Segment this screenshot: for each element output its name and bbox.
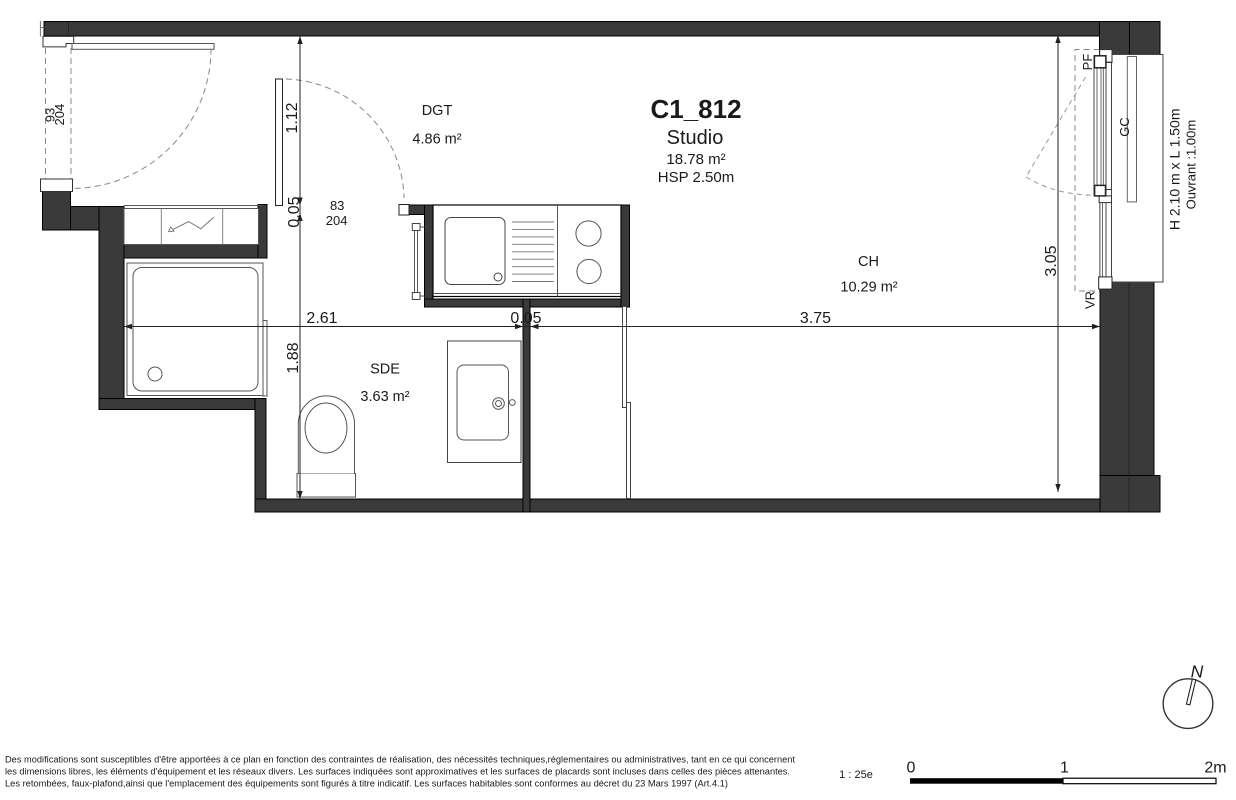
svg-text:3.05: 3.05: [1043, 245, 1060, 276]
svg-text:C1_812: C1_812: [650, 94, 741, 124]
svg-text:1 : 25e: 1 : 25e: [839, 769, 873, 781]
svg-text:1.12: 1.12: [284, 102, 301, 133]
svg-text:CH: CH: [858, 254, 879, 270]
svg-text:1.88: 1.88: [285, 342, 302, 373]
svg-text:SDE: SDE: [370, 362, 400, 378]
svg-text:1: 1: [1060, 760, 1069, 777]
svg-text:204: 204: [52, 104, 67, 126]
svg-text:Des modifications sont suscept: Des modifications sont susceptibles d'êt…: [5, 755, 796, 765]
svg-text:Studio: Studio: [667, 127, 724, 149]
svg-text:H 2.10 m x L 1.50m: H 2.10 m x L 1.50m: [1166, 108, 1182, 230]
svg-text:0: 0: [907, 760, 916, 777]
svg-text:2m: 2m: [1204, 760, 1226, 777]
svg-text:DGT: DGT: [422, 103, 453, 119]
svg-text:0.05: 0.05: [510, 310, 541, 327]
svg-text:2.61: 2.61: [306, 310, 337, 327]
svg-text:0.05: 0.05: [286, 196, 303, 227]
svg-text:VR: VR: [1082, 291, 1097, 309]
svg-text:10.29 m²: 10.29 m²: [840, 280, 897, 296]
svg-text:204: 204: [326, 213, 348, 228]
svg-text:PF: PF: [1080, 54, 1095, 71]
svg-text:HSP 2.50m: HSP 2.50m: [658, 169, 734, 186]
svg-text:3.75: 3.75: [800, 310, 831, 327]
svg-text:3.63 m²: 3.63 m²: [360, 389, 409, 405]
svg-text:83: 83: [330, 198, 344, 213]
svg-text:Ouvrant :1.00m: Ouvrant :1.00m: [1184, 120, 1199, 210]
svg-text:Les retombées, faux-plafond,ai: Les retombées, faux-plafond,ainsi que l'…: [5, 779, 728, 789]
svg-text:les dimensions libres, les élé: les dimensions libres, les éléments d'éq…: [5, 767, 790, 777]
svg-text:4.86 m²: 4.86 m²: [412, 132, 461, 148]
svg-text:GC: GC: [1117, 117, 1132, 137]
svg-text:N: N: [1191, 662, 1204, 682]
svg-text:18.78 m²: 18.78 m²: [666, 151, 725, 168]
